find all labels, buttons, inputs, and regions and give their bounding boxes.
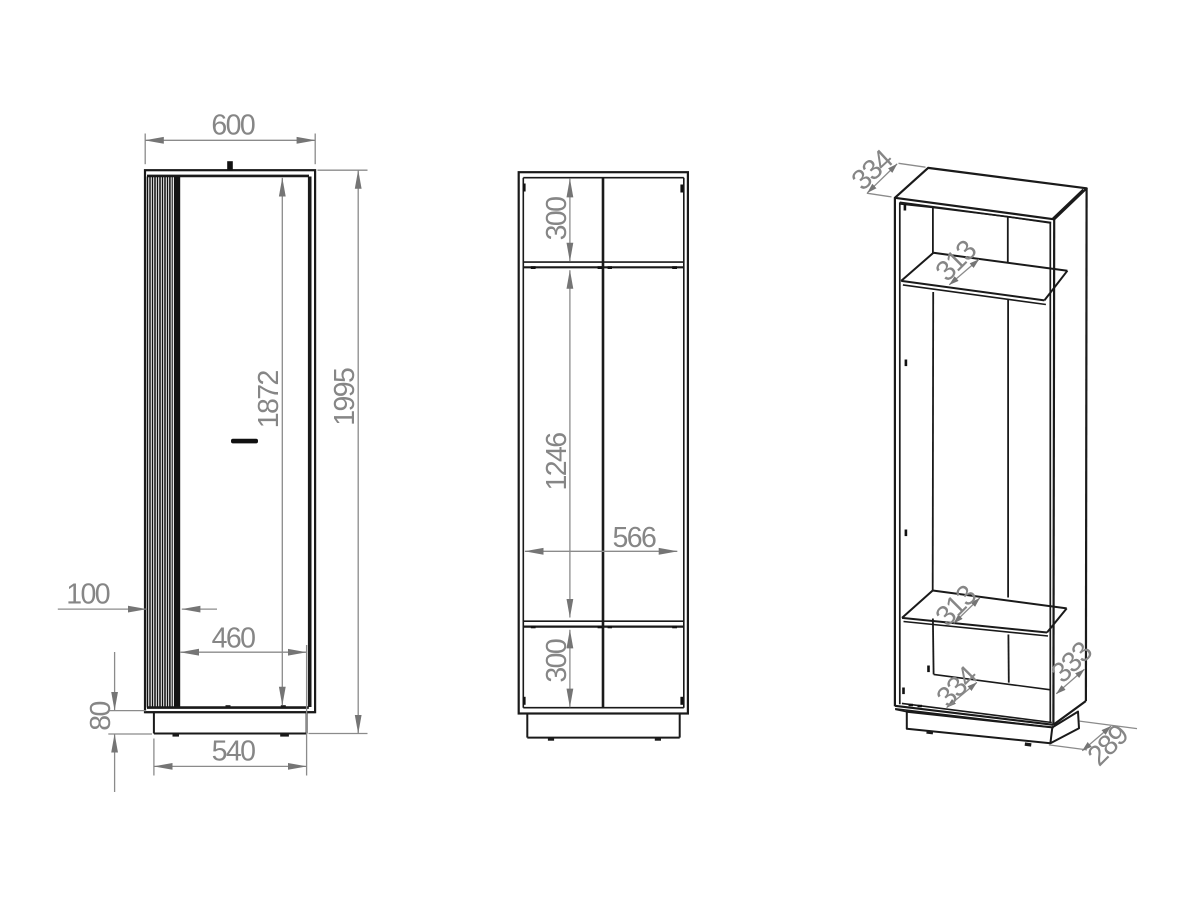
- svg-text:100: 100: [66, 579, 110, 611]
- svg-text:1995: 1995: [329, 368, 361, 426]
- svg-text:1246: 1246: [541, 433, 573, 491]
- svg-text:540: 540: [212, 736, 256, 768]
- svg-text:566: 566: [613, 522, 657, 554]
- svg-text:300: 300: [541, 197, 573, 241]
- svg-text:1872: 1872: [253, 371, 285, 429]
- svg-text:460: 460: [212, 623, 256, 655]
- svg-text:300: 300: [541, 639, 573, 683]
- svg-text:600: 600: [211, 109, 255, 141]
- svg-text:80: 80: [85, 702, 117, 731]
